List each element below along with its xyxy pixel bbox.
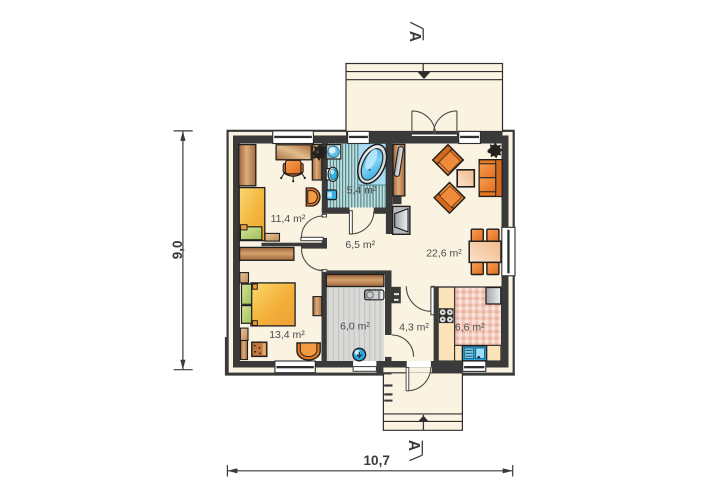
svg-text:4,3 m²: 4,3 m² <box>399 322 429 334</box>
svg-text:A: A <box>405 440 422 451</box>
svg-text:6,0 m²: 6,0 m² <box>340 321 370 333</box>
svg-text:13,4 m²: 13,4 m² <box>269 329 305 341</box>
svg-text:6,6 m²: 6,6 m² <box>455 322 485 334</box>
svg-text:6,5 m²: 6,5 m² <box>345 239 375 251</box>
svg-text:A: A <box>406 31 423 42</box>
svg-text:5,4 m²: 5,4 m² <box>347 185 377 197</box>
svg-text:11,4 m²: 11,4 m² <box>271 213 306 225</box>
svg-text:22,6 m²: 22,6 m² <box>426 248 462 260</box>
svg-text:10,7: 10,7 <box>364 453 390 468</box>
svg-text:9,0: 9,0 <box>170 240 185 259</box>
